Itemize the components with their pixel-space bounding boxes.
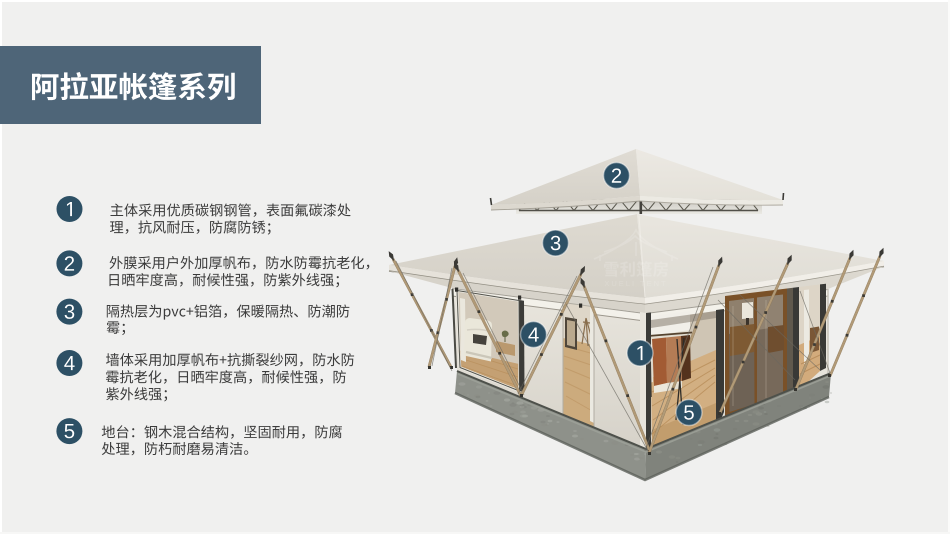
svg-text:XUELI TENT: XUELI TENT — [604, 279, 667, 288]
